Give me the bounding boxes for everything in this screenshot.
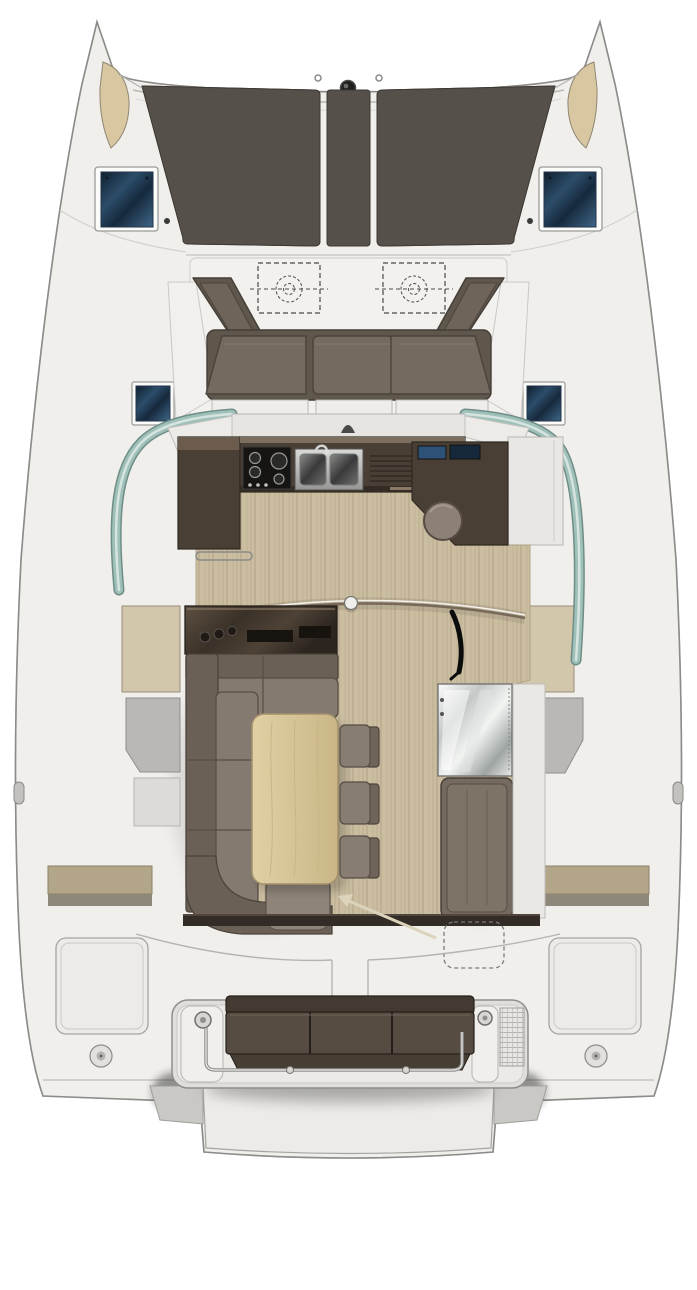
trampolines [118,74,579,246]
cleat-port [14,782,24,804]
forward-cockpit [168,258,529,426]
hatch-glass-port-mid [136,386,170,421]
sink-faucet-base [325,450,330,455]
dinette-chairs [340,725,379,878]
stove [243,447,291,489]
sideboard-cup [200,632,210,642]
aft-locker-starboard [549,938,641,1034]
floorplan-canvas [0,0,697,1290]
aft-grate [500,1008,524,1066]
chair [340,836,379,878]
deck-filler-port [90,1045,112,1067]
olive-step-starboard-shadow [545,894,649,906]
nav-station [438,684,545,918]
transom-step-starboard [494,1086,547,1124]
stove-knob [248,483,252,487]
sideboard [185,606,337,654]
deck-fitting-dot-starboard [527,218,533,224]
stove-burner [274,474,284,484]
stove-knob [256,483,260,487]
nav-bench-cushion [447,784,507,912]
side-locker-gray-port [126,698,180,772]
side-step-port [134,778,180,826]
hatch-glass-starboard-mid [527,386,561,421]
bar-stool [424,502,462,540]
cleat-starboard [673,782,683,804]
sink-basin-right [330,454,358,485]
chair [340,782,379,824]
aft-bench-seats [226,1012,474,1054]
stove-knob [264,483,268,487]
stove-burner [250,467,261,478]
hatch-glass-port-fwd [101,172,153,227]
aft-locker-port [56,938,148,1034]
deck-filler-dot [595,1055,598,1058]
hatch-glass-starboard-fwd [544,172,596,227]
sideboard-cup [214,629,224,639]
galley-left-column-top [178,437,240,450]
sideboard-tray [247,630,293,642]
stove-burner [250,453,261,464]
hatch-hinge-dot [548,176,551,179]
lashing-hook [315,75,321,81]
galley-left-column [178,437,240,549]
nav-wall-white [513,684,545,918]
hatch-hinge-dot [105,176,108,179]
saloon-aft-wall [183,914,540,926]
sink-basin-left [300,454,326,485]
rail-fitting [403,1067,410,1074]
chair-seat [340,725,370,767]
forward-bench-cushion-center [313,336,393,394]
instrument-screen-left [418,446,446,459]
lashing-hook [376,75,382,81]
rail-fitting [287,1067,294,1074]
trampoline-center-strip [327,90,370,246]
olive-step-port [48,866,152,894]
hatch-hinge-dot [588,176,591,179]
chair-seat [340,836,370,878]
aft-bench [172,996,528,1102]
deck-fitting-dot-port [164,218,170,224]
pod-fitting-port-center [200,1017,206,1023]
forestay-fitting-highlight [344,84,349,89]
hatch-hinge-dot [145,176,148,179]
instrument-screen-right [450,445,480,459]
side-panel-beige-port [122,606,180,692]
transom-step-port [150,1086,203,1124]
pod-fitting-starboard-center [483,1016,488,1021]
stove-burner [271,453,287,469]
door-knob [345,597,358,610]
dining-table [252,714,346,892]
sink [295,446,363,490]
cabinet-white-starboard [508,437,563,545]
forward-bench-cushion-port [206,336,306,394]
olive-step-starboard [545,866,649,894]
olive-step-port-shadow [48,894,152,906]
forward-bench-cushion-starboard [391,336,491,394]
aft-bench-front-lip [230,1054,470,1070]
sideboard-cup [228,627,237,636]
sideboard-tray [299,626,331,638]
aft-bench-backrest [226,996,474,1014]
chart-table-hinge [440,712,444,716]
deck-filler-starboard [585,1045,607,1067]
chart-table-hinge [440,698,444,702]
chair [340,725,379,767]
chair-seat [340,782,370,824]
deck-filler-dot [100,1055,103,1058]
